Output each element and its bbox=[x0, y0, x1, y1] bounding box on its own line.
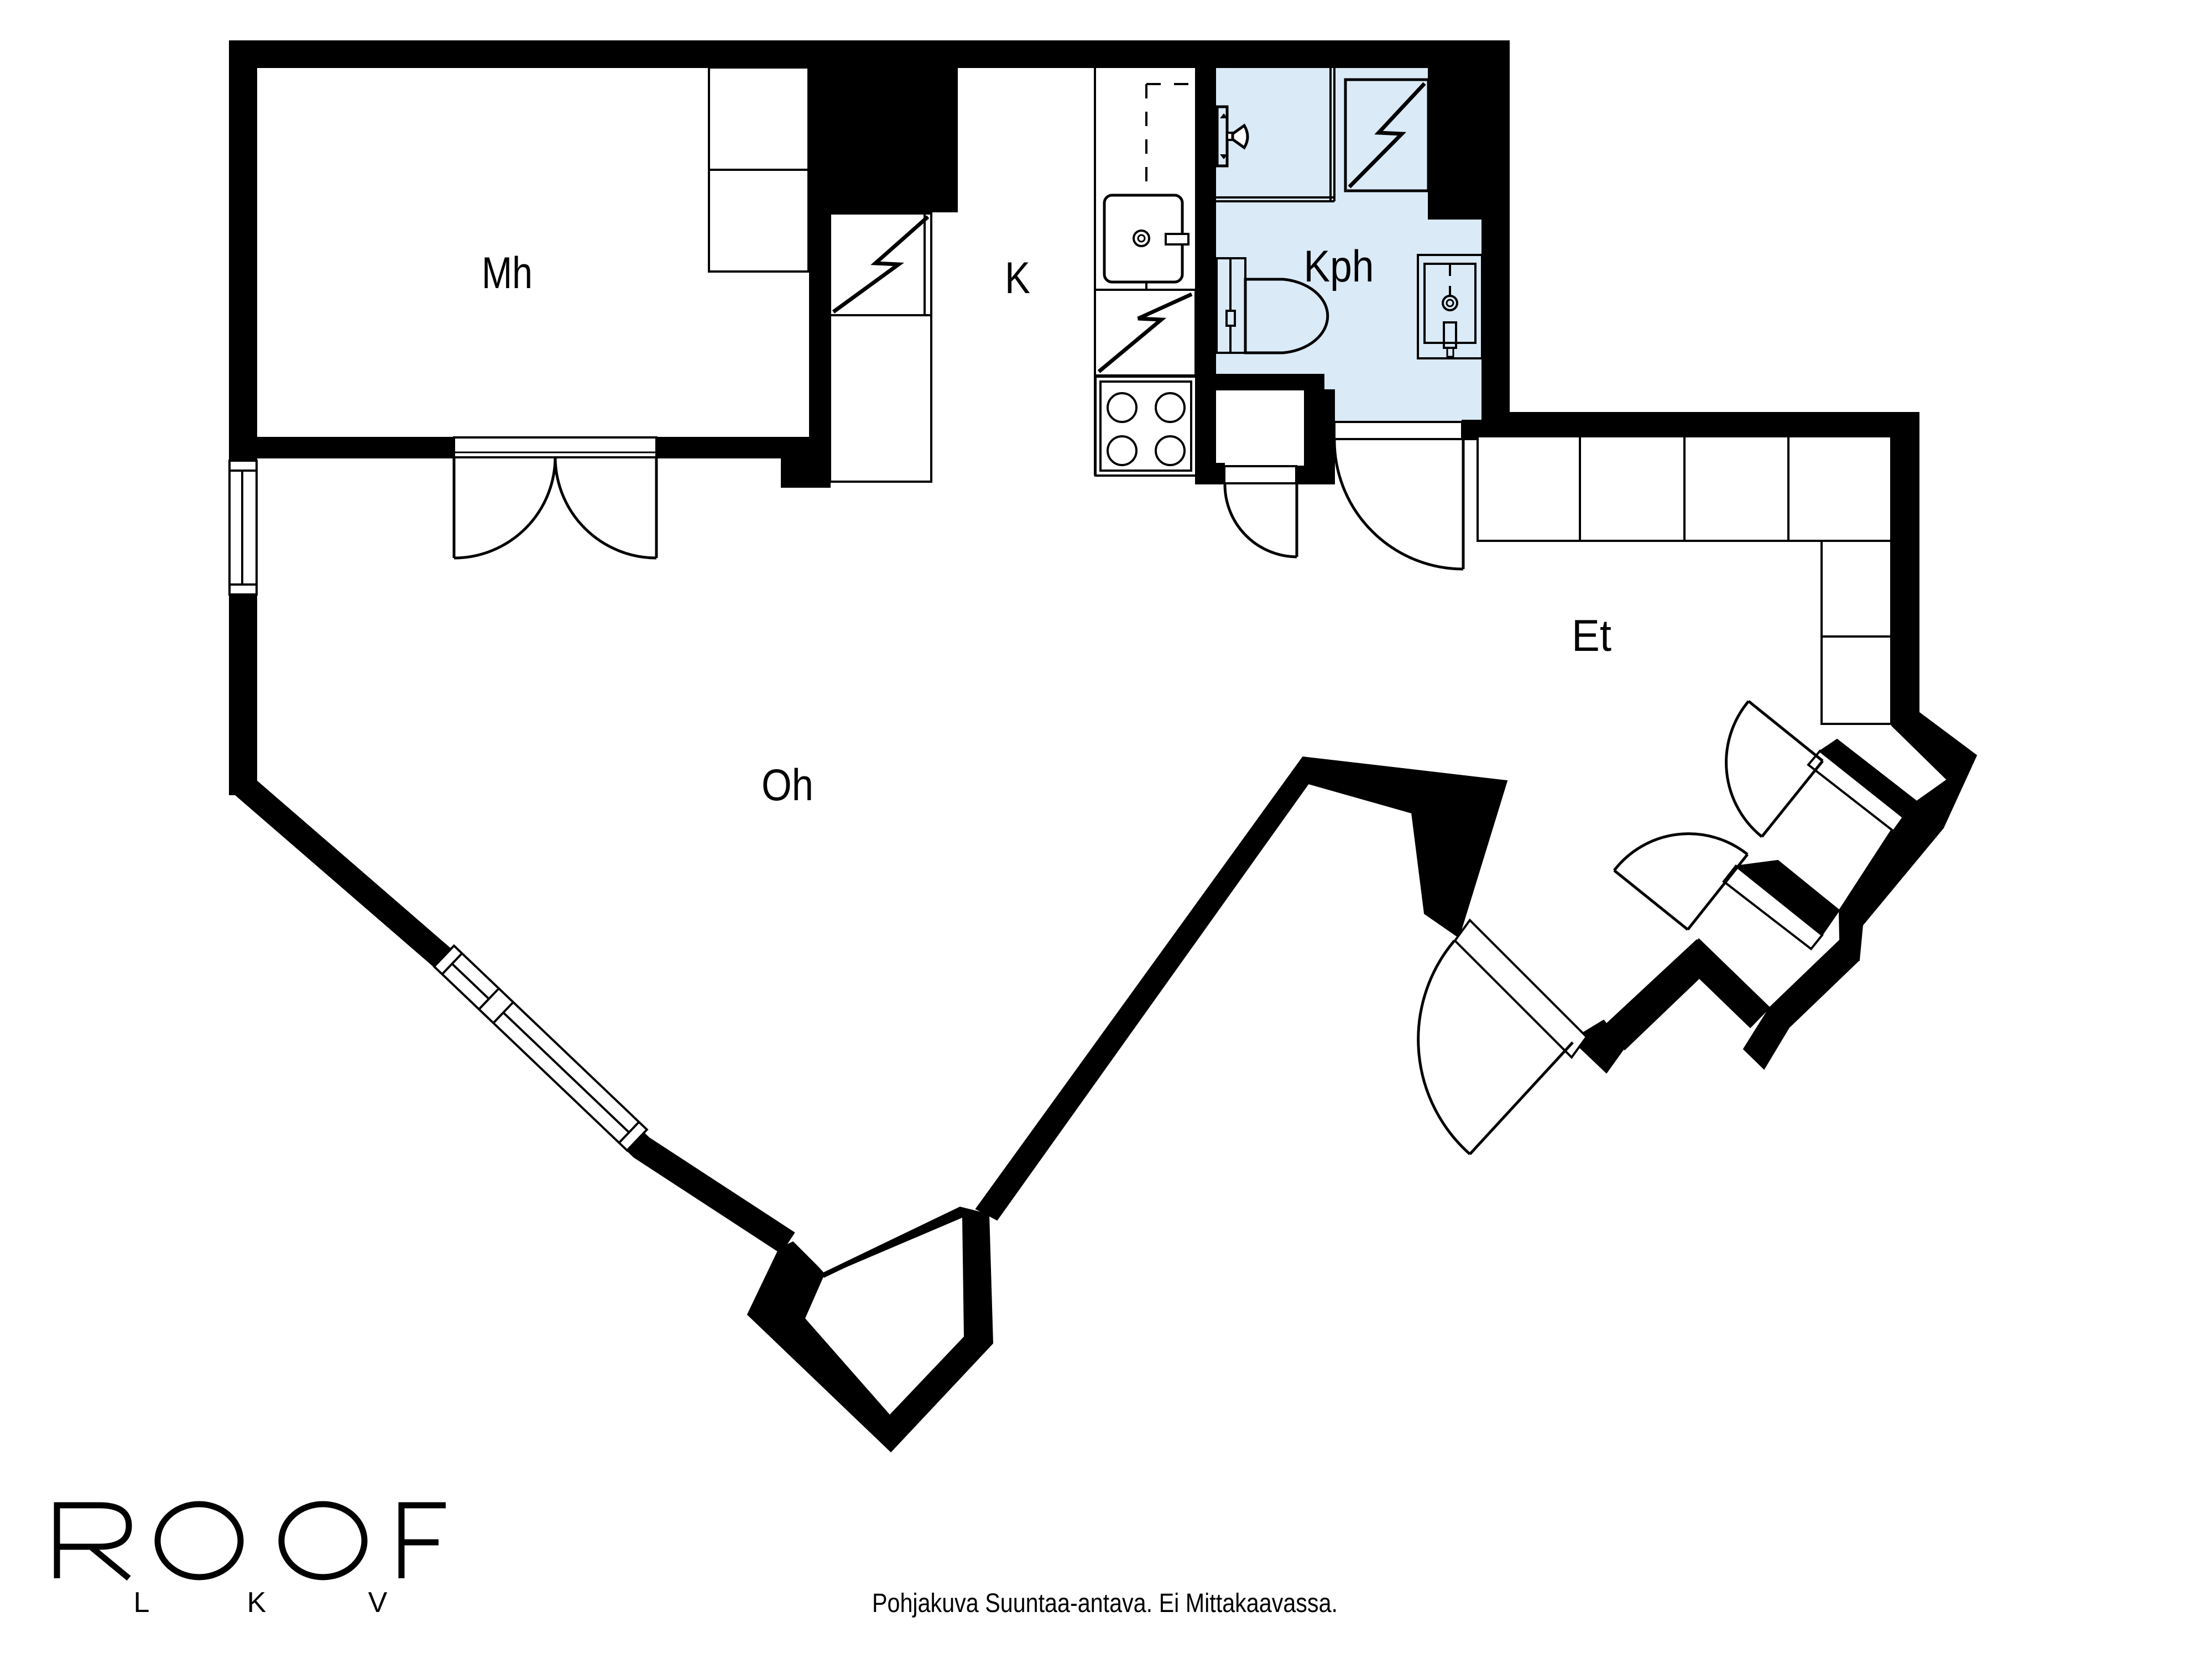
svg-text:Pohjakuva Suuntaa-antava. Ei M: Pohjakuva Suuntaa-antava. Ei Mittakaavas… bbox=[872, 1589, 1338, 1618]
svg-text:Mh: Mh bbox=[482, 248, 533, 298]
svg-text:K: K bbox=[247, 1587, 267, 1619]
svg-text:V: V bbox=[368, 1587, 388, 1619]
svg-text:K: K bbox=[1005, 253, 1030, 303]
svg-text:Et: Et bbox=[1572, 611, 1611, 661]
svg-text:L: L bbox=[134, 1587, 150, 1619]
svg-text:Kph: Kph bbox=[1304, 242, 1374, 291]
svg-text:Oh: Oh bbox=[761, 760, 813, 810]
